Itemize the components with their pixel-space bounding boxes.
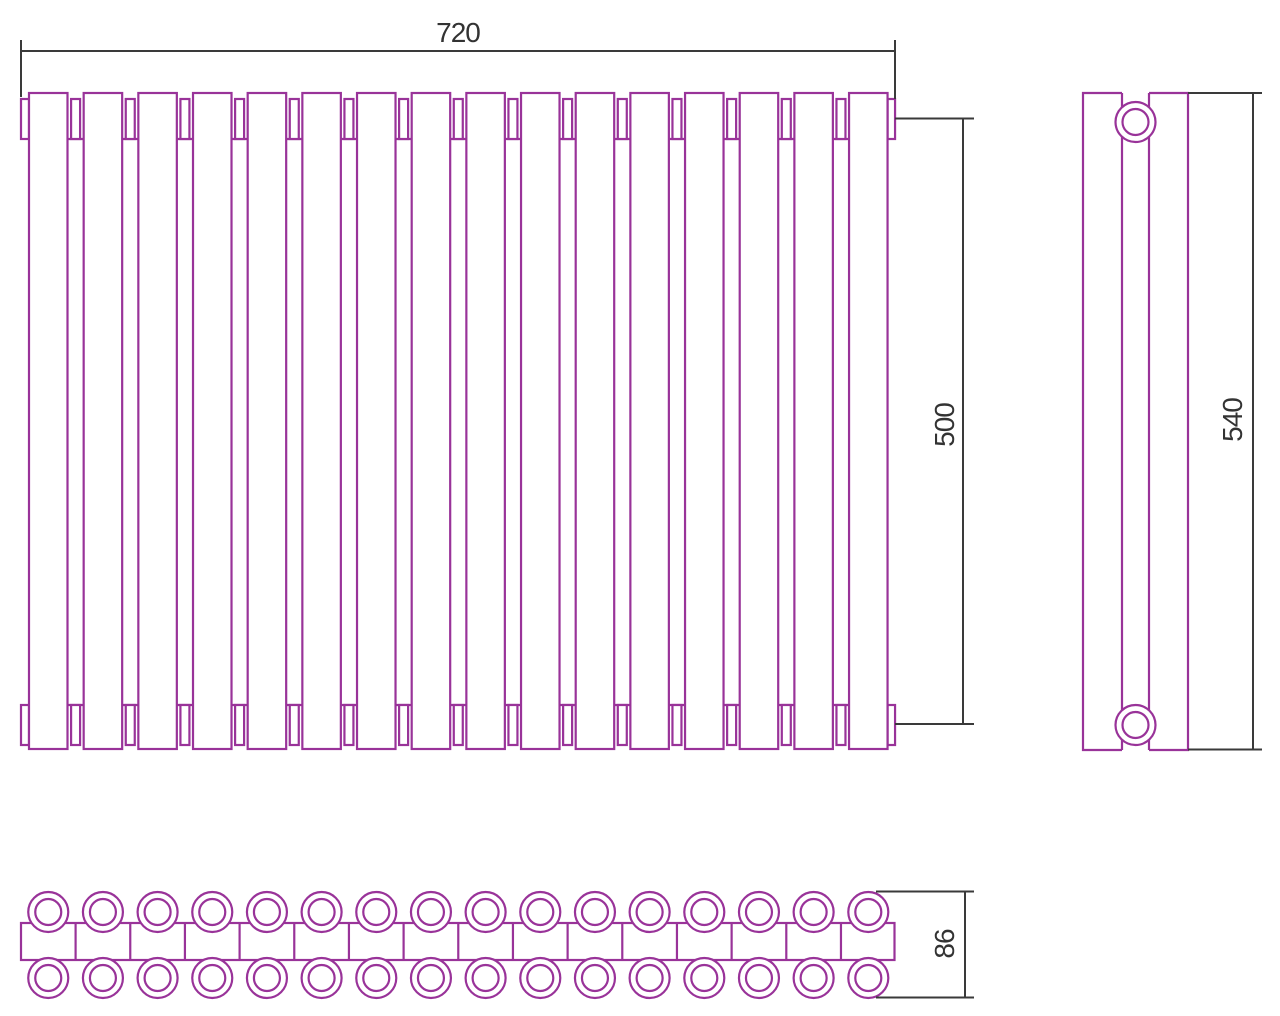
top-section-connector xyxy=(399,99,408,139)
left-top-endcap xyxy=(21,99,29,139)
bottom-section-connector xyxy=(782,705,791,745)
bottom-section-connector xyxy=(180,705,189,745)
section-tube xyxy=(193,93,232,749)
section-tube xyxy=(29,93,68,749)
drawing-canvas: 720 500 540 86 xyxy=(0,0,1280,1016)
section-tube xyxy=(84,93,123,749)
section-tube xyxy=(138,93,177,749)
plan-tube-rear-inner xyxy=(199,965,225,991)
plan-tube-front-inner xyxy=(637,899,663,925)
top-section-connector xyxy=(290,99,299,139)
right-bottom-endcap xyxy=(888,705,896,745)
section-tube xyxy=(576,93,615,749)
plan-tube-rear-inner xyxy=(254,965,280,991)
dim-depth-label: 86 xyxy=(929,929,960,959)
section-tube xyxy=(412,93,451,749)
bottom-section-connector xyxy=(618,705,627,745)
plan-tube-front-inner xyxy=(199,899,225,925)
dim-overall-width-label: 720 xyxy=(436,17,480,48)
top-section-connector xyxy=(618,99,627,139)
section-tube xyxy=(740,93,779,749)
side-profile-outline xyxy=(1083,93,1188,750)
section-tube xyxy=(685,93,724,749)
section-tube xyxy=(357,93,396,749)
top-section-connector xyxy=(180,99,189,139)
plan-tube-front-inner xyxy=(90,899,116,925)
left-bottom-endcap xyxy=(21,705,29,745)
plan-tube-rear-inner xyxy=(746,965,772,991)
plan-tube-rear-inner xyxy=(418,965,444,991)
bottom-section-connector xyxy=(235,705,244,745)
bottom-section-connector xyxy=(71,705,80,745)
section-tube xyxy=(849,93,888,749)
plan-tube-front-inner xyxy=(35,899,61,925)
right-top-endcap xyxy=(888,99,896,139)
plan-tube-rear-inner xyxy=(801,965,827,991)
plan-tube-front-inner xyxy=(473,899,499,925)
bottom-section-connector xyxy=(836,705,845,745)
bottom-section-connector xyxy=(399,705,408,745)
plan-tube-rear-inner xyxy=(637,965,663,991)
bottom-section-connector xyxy=(344,705,353,745)
plan-tube-rear-inner xyxy=(309,965,335,991)
plan-tube-rear-inner xyxy=(145,965,171,991)
section-tube xyxy=(466,93,505,749)
plan-tube-rear-inner xyxy=(691,965,717,991)
plan-tube-rear-inner xyxy=(35,965,61,991)
top-section-connector xyxy=(235,99,244,139)
top-section-connector xyxy=(126,99,135,139)
plan-view xyxy=(21,892,895,998)
plan-tube-front-inner xyxy=(145,899,171,925)
connection-port-inner xyxy=(1123,712,1149,738)
plan-tube-rear-inner xyxy=(363,965,389,991)
plan-tube-front-inner xyxy=(801,899,827,925)
section-tube xyxy=(794,93,833,749)
top-section-connector xyxy=(836,99,845,139)
plan-tube-front-inner xyxy=(527,899,553,925)
bottom-section-connector xyxy=(290,705,299,745)
plan-tube-front-inner xyxy=(254,899,280,925)
plan-tube-rear-inner xyxy=(90,965,116,991)
bottom-section-connector xyxy=(454,705,463,745)
top-section-connector xyxy=(782,99,791,139)
top-section-connector xyxy=(727,99,736,139)
top-section-connector xyxy=(508,99,517,139)
section-tube xyxy=(630,93,669,749)
bottom-section-connector xyxy=(563,705,572,745)
connection-port-inner xyxy=(1123,109,1149,135)
top-section-connector xyxy=(672,99,681,139)
section-tube xyxy=(302,93,341,749)
plan-tube-rear-inner xyxy=(855,965,881,991)
radiator-technical-drawing: 720 500 540 86 xyxy=(0,0,1280,1016)
dim-axis-spacing-label: 500 xyxy=(929,403,960,447)
front-view xyxy=(21,93,895,749)
plan-tube-front-inner xyxy=(363,899,389,925)
plan-tube-front-inner xyxy=(418,899,444,925)
bottom-section-connector xyxy=(508,705,517,745)
section-tube xyxy=(248,93,287,749)
top-section-connector xyxy=(563,99,572,139)
dim-overall-height-label: 540 xyxy=(1217,398,1248,442)
section-tube xyxy=(521,93,560,749)
plan-tube-rear-inner xyxy=(527,965,553,991)
top-section-connector xyxy=(71,99,80,139)
bottom-section-connector xyxy=(727,705,736,745)
bottom-section-connector xyxy=(126,705,135,745)
plan-tube-rear-inner xyxy=(473,965,499,991)
plan-tube-front-inner xyxy=(691,899,717,925)
bottom-section-connector xyxy=(672,705,681,745)
plan-tube-front-inner xyxy=(855,899,881,925)
plan-tube-front-inner xyxy=(309,899,335,925)
side-view xyxy=(1083,93,1188,750)
top-section-connector xyxy=(344,99,353,139)
plan-tube-rear-inner xyxy=(582,965,608,991)
plan-tube-front-inner xyxy=(746,899,772,925)
top-section-connector xyxy=(454,99,463,139)
plan-tube-front-inner xyxy=(582,899,608,925)
